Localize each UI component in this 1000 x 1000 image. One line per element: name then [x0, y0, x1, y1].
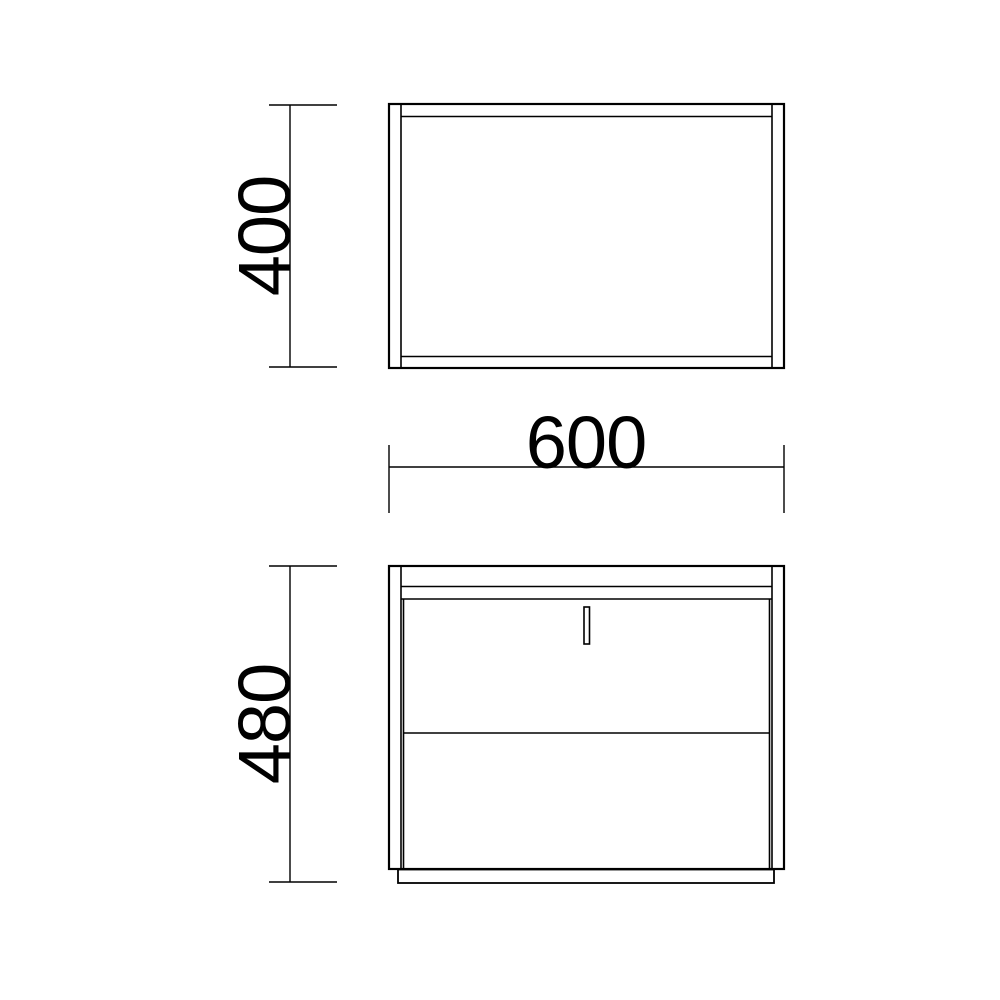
front-view-handle-slot	[584, 607, 590, 644]
dimension-width: 600	[389, 401, 784, 513]
front-view-plinth	[398, 870, 774, 884]
cad-orthographic-drawing: 400 600 480	[0, 0, 1000, 1000]
drawing-canvas: 400 600 480	[0, 0, 1000, 1000]
dimension-depth: 400	[223, 105, 337, 367]
front-view	[389, 566, 784, 883]
top-view	[389, 104, 784, 368]
dimension-height-label: 480	[223, 664, 306, 784]
dimension-width-label: 600	[526, 401, 646, 484]
top-view-outline	[389, 104, 784, 368]
dimension-depth-label: 400	[223, 176, 306, 296]
dimension-height: 480	[223, 566, 337, 882]
front-view-outline	[389, 566, 784, 869]
